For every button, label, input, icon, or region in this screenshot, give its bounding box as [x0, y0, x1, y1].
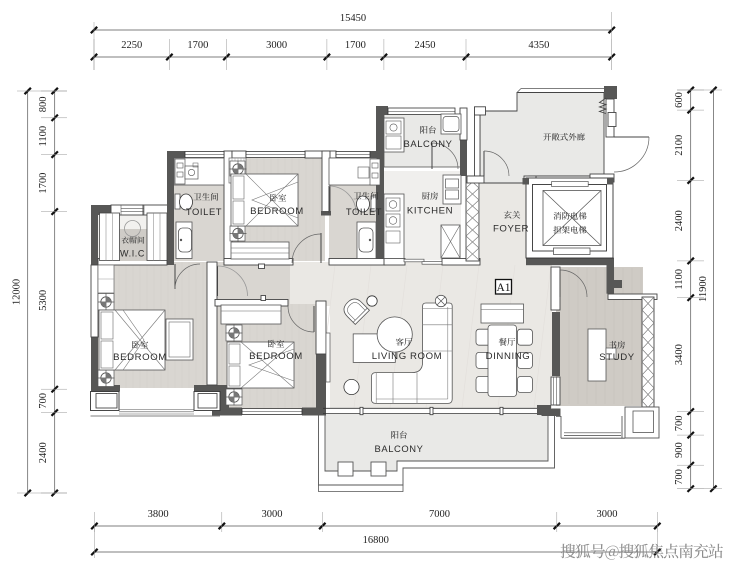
svg-text:12000: 12000 [12, 279, 23, 305]
svg-text:BEDROOM: BEDROOM [249, 351, 303, 362]
svg-text:2450: 2450 [414, 40, 435, 51]
svg-text:LIVING ROOM: LIVING ROOM [372, 351, 443, 362]
svg-text:5300: 5300 [38, 290, 49, 311]
svg-text:3000: 3000 [266, 40, 287, 51]
svg-text:1700: 1700 [187, 40, 208, 51]
svg-text:700: 700 [674, 469, 685, 485]
svg-text:BALCONY: BALCONY [403, 138, 452, 149]
svg-text:1100: 1100 [674, 269, 685, 290]
svg-text:BEDROOM: BEDROOM [113, 352, 167, 363]
svg-text:TOILET: TOILET [346, 206, 382, 217]
svg-text:A1: A1 [496, 282, 510, 294]
svg-text:15450: 15450 [340, 13, 366, 24]
svg-text:1700: 1700 [38, 173, 49, 194]
svg-text:3000: 3000 [262, 509, 283, 520]
svg-text:DINNING: DINNING [486, 351, 531, 362]
svg-text:2400: 2400 [38, 442, 49, 463]
svg-text:TOILET: TOILET [186, 206, 222, 217]
svg-text:2250: 2250 [121, 40, 142, 51]
svg-text:STUDY: STUDY [599, 352, 635, 363]
svg-text:4350: 4350 [528, 40, 549, 51]
svg-text:BEDROOM: BEDROOM [250, 206, 304, 217]
svg-text:BALCONY: BALCONY [374, 443, 423, 454]
svg-text:1700: 1700 [345, 40, 366, 51]
svg-text:11900: 11900 [698, 276, 709, 302]
svg-text:1100: 1100 [38, 126, 49, 147]
svg-text:3000: 3000 [597, 509, 618, 520]
svg-text:700: 700 [38, 393, 49, 409]
svg-text:600: 600 [674, 92, 685, 108]
svg-text:900: 900 [674, 442, 685, 458]
svg-text:700: 700 [674, 415, 685, 431]
svg-text:7000: 7000 [429, 509, 450, 520]
svg-text:2100: 2100 [674, 135, 685, 156]
svg-text:W.I.C: W.I.C [120, 249, 145, 259]
svg-text:FOYER: FOYER [493, 224, 529, 235]
svg-text:KITCHEN: KITCHEN [407, 206, 453, 217]
svg-text:3800: 3800 [148, 509, 169, 520]
svg-text:800: 800 [38, 97, 49, 113]
svg-text:16800: 16800 [363, 535, 389, 546]
svg-text:3400: 3400 [674, 344, 685, 365]
svg-text:2400: 2400 [674, 210, 685, 231]
